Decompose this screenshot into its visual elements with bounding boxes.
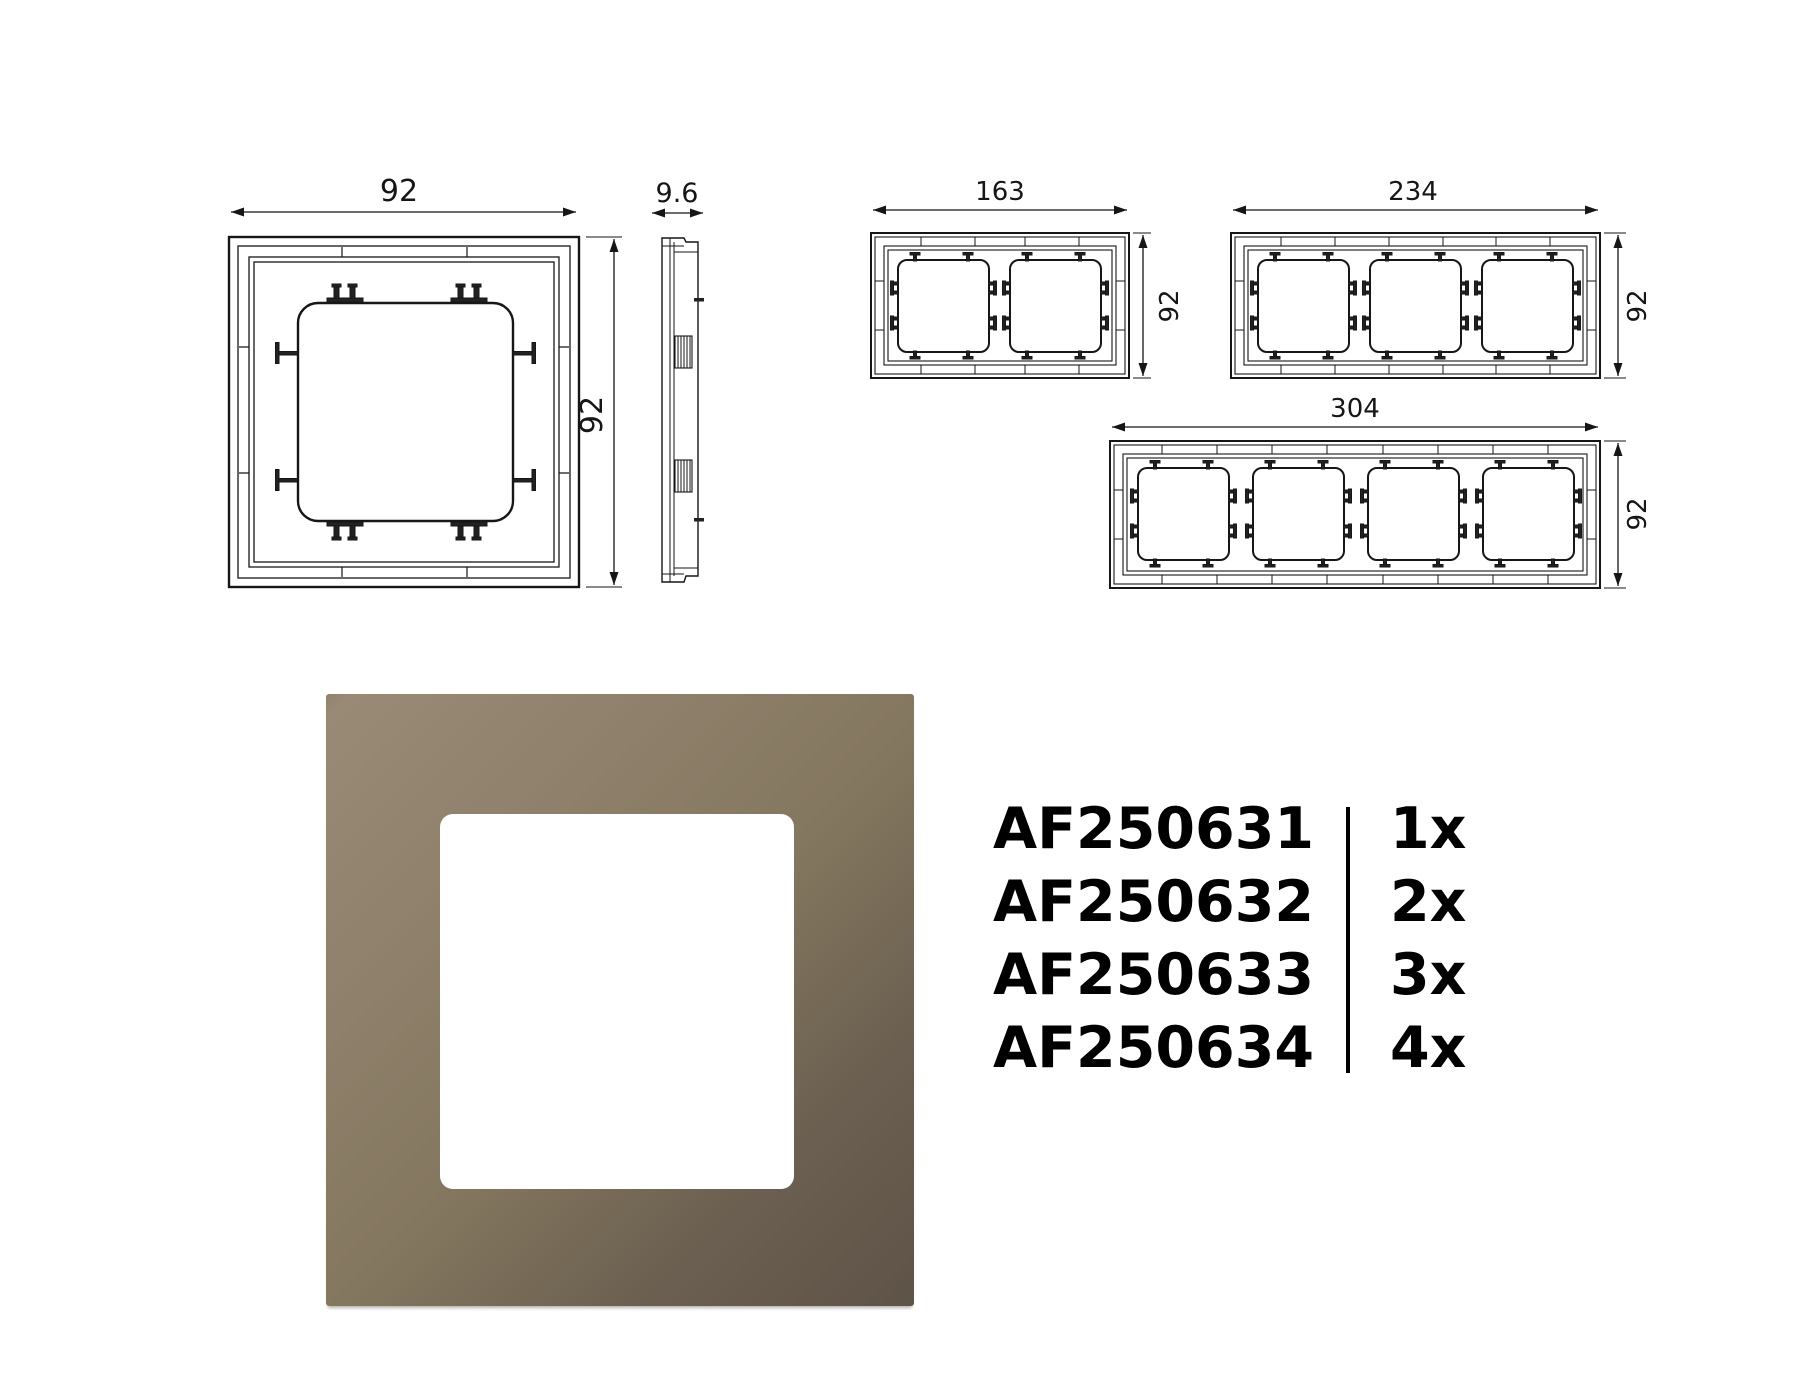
part-qty: 1x [1390,793,1466,866]
dim-label-4gang-height: 92 [1623,497,1653,530]
dim-label-3gang-height: 92 [1623,289,1653,322]
module-opening [891,253,997,360]
parts-qty-column: 1x 2x 3x 4x [1390,793,1466,1085]
dim-label-3gang-width: 234 [1388,177,1438,207]
module-opening [1475,253,1581,360]
parts-divider-line [1346,807,1350,1073]
module-opening [1251,253,1357,360]
part-code: AF250634 [993,1012,1314,1085]
side-clip-hatched [675,460,692,492]
part-qty: 3x [1390,939,1466,1012]
extension-lines [1133,233,1151,378]
side-tab [694,518,704,522]
dim-label-side-depth: 9.6 [656,178,699,209]
dim-label-4gang-width: 304 [1330,394,1380,424]
part-qty: 2x [1390,866,1466,939]
drawing-1gang-front [229,237,579,587]
drawing-3gang-front [1231,233,1600,378]
module-opening [1246,461,1352,568]
dim-label-2gang-height: 92 [1155,289,1185,322]
dim-label-2gang-width: 163 [975,177,1025,207]
module-opening [1361,461,1467,568]
product-photo-frame [326,694,914,1306]
product-photo-cutout [440,814,794,1189]
module-opening [276,284,536,540]
spec-sheet-page: 92 92 9.6 163 92 234 92 304 92 AF250631 … [0,0,1800,1400]
part-qty: 4x [1390,1012,1466,1085]
drawing-side-view [662,238,704,582]
drawing-4gang-front [1110,441,1600,588]
side-tab [694,298,704,302]
module-opening [1363,253,1469,360]
part-code: AF250632 [993,866,1314,939]
parts-code-column: AF250631 AF250632 AF250633 AF250634 [993,793,1314,1085]
module-opening [1003,253,1109,360]
side-profile-outline [662,238,698,582]
dim-label-1gang-width: 92 [380,174,418,209]
side-clip-hatched [675,336,692,368]
dim-label-1gang-height: 92 [575,396,610,434]
module-opening [1476,461,1582,568]
drawing-2gang-front [871,233,1129,378]
module-opening [1131,461,1237,568]
part-code: AF250633 [993,939,1314,1012]
part-code: AF250631 [993,793,1314,866]
